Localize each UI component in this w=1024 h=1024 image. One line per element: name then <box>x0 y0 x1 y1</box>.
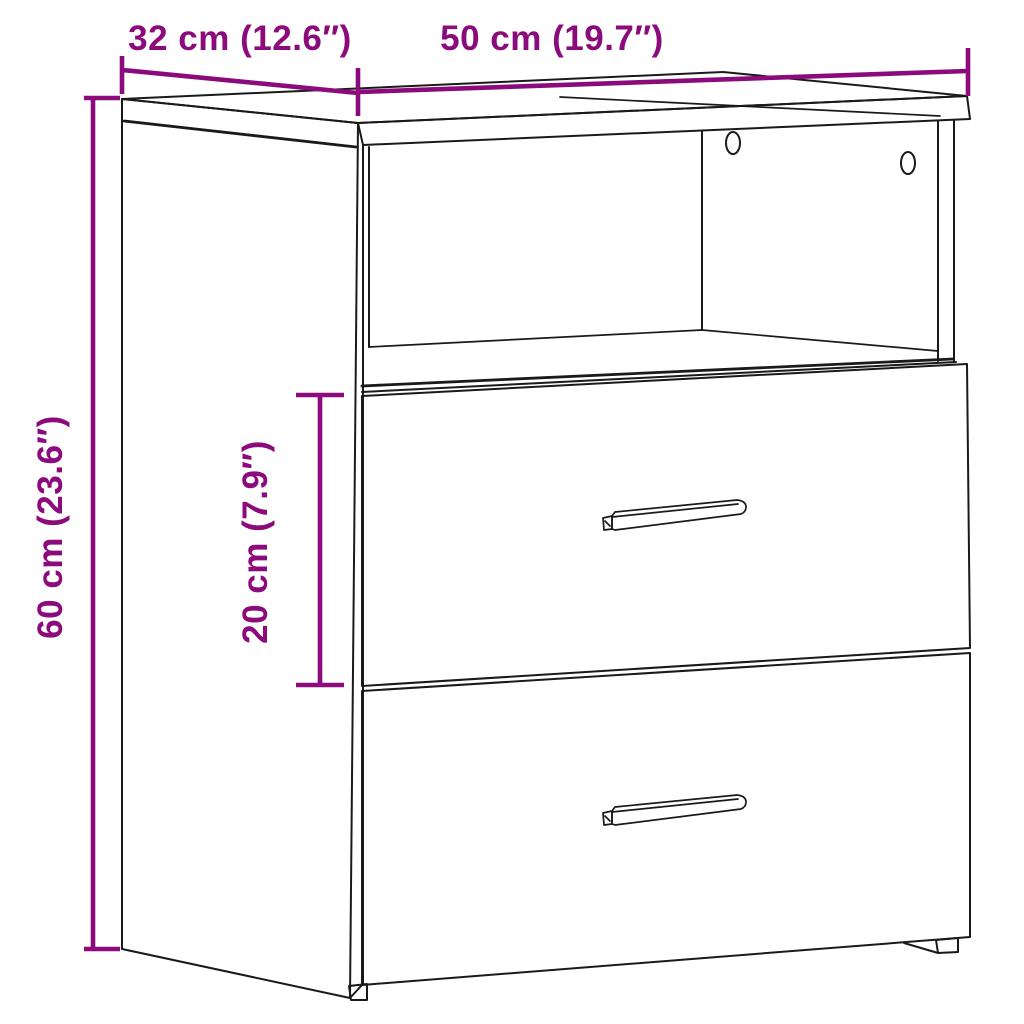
handle-cap-notch <box>605 521 610 526</box>
drawer-2 <box>362 653 970 985</box>
drawer-1 <box>362 364 970 686</box>
drawer-1-handle <box>603 500 746 530</box>
drawer-2-handle <box>603 795 746 825</box>
top-front-band <box>358 96 970 145</box>
shelf-floor-back-edge <box>369 330 938 351</box>
front-right-foot <box>936 938 958 953</box>
base-and-feet <box>349 938 958 1000</box>
cam-hole-icon <box>726 132 740 154</box>
dim-height-label: 60 cm (23.6″) <box>31 415 70 639</box>
dim-depth-label: 32 cm (12.6″) <box>128 19 352 58</box>
open-shelf-compartment <box>362 120 956 392</box>
dim-drawer-height-label: 20 cm (7.9″) <box>236 440 275 644</box>
bottom-corner-connector <box>350 985 362 998</box>
side-panel-top-edge-line <box>124 121 356 147</box>
shelf-sill-bottom-edge <box>362 362 956 392</box>
handle-cap-notch <box>605 816 610 821</box>
cam-hole-icon <box>901 152 915 174</box>
dim-width-label: 50 cm (19.7″) <box>440 19 664 58</box>
dimension-diagram: 32 cm (12.6″) 50 cm (19.7″) 60 cm (23.6″… <box>0 0 1024 1024</box>
dim-depth-line <box>122 70 358 93</box>
drawer-1-front <box>362 364 970 686</box>
dim-height: 60 cm (23.6″) <box>31 98 120 949</box>
front-right-foot-edge <box>904 943 938 953</box>
cabinet-dimension-drawing: 32 cm (12.6″) 50 cm (19.7″) 60 cm (23.6″… <box>0 0 1024 1024</box>
shelf-sill-top-edge <box>362 359 953 386</box>
dim-drawer-height: 20 cm (7.9″) <box>236 395 344 685</box>
dimensions: 32 cm (12.6″) 50 cm (19.7″) 60 cm (23.6″… <box>31 19 968 949</box>
dim-depth: 32 cm (12.6″) <box>122 19 358 116</box>
